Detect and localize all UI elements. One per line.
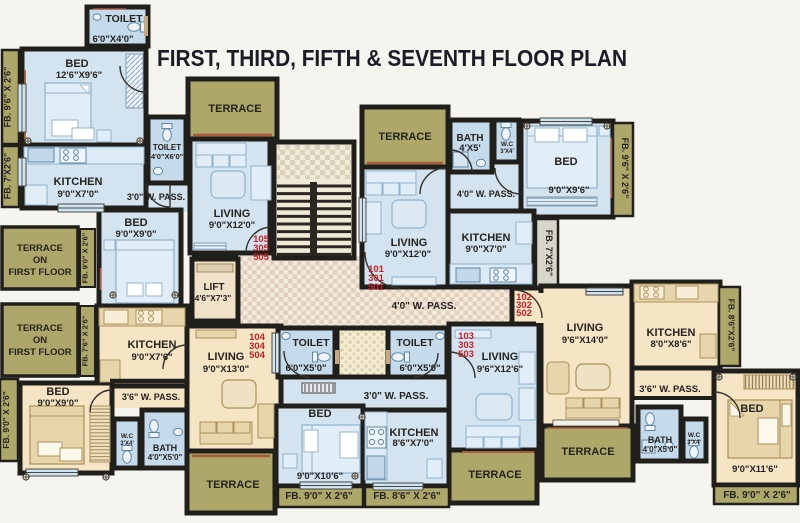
svg-text:4'0" W. PASS.: 4'0" W. PASS.: [457, 189, 515, 199]
svg-text:8'6"X7'0": 8'6"X7'0": [393, 438, 434, 449]
svg-text:LIVING: LIVING: [214, 208, 251, 220]
svg-text:4'0"X5'0": 4'0"X5'0": [643, 445, 678, 454]
svg-text:3'X4': 3'X4': [500, 149, 514, 155]
svg-text:9'0"X9'0": 9'0"X9'0": [116, 229, 157, 240]
svg-text:3'X4': 3'X4': [687, 440, 701, 446]
svg-text:LIVING: LIVING: [391, 237, 428, 249]
svg-text:TERRACE: TERRACE: [378, 131, 431, 143]
svg-text:501: 501: [368, 282, 385, 293]
svg-text:TERRACE: TERRACE: [468, 469, 521, 481]
svg-text:FB. 7'X2'6": FB. 7'X2'6": [544, 230, 554, 277]
svg-text:9'0"X9'6": 9'0"X9'6": [549, 185, 590, 196]
svg-text:LIVING: LIVING: [482, 351, 519, 363]
svg-text:9'6"X14'0": 9'6"X14'0": [562, 335, 608, 346]
svg-text:LIFT: LIFT: [203, 282, 224, 293]
svg-text:505: 505: [253, 252, 270, 263]
svg-text:9'0"X12'0": 9'0"X12'0": [385, 249, 431, 260]
svg-text:3'6" W. PASS.: 3'6" W. PASS.: [639, 384, 701, 395]
svg-text:3'0" W. PASS.: 3'0" W. PASS.: [364, 391, 429, 402]
svg-text:BED: BED: [740, 403, 763, 415]
svg-text:4'0"X5'0": 4'0"X5'0": [148, 453, 183, 462]
svg-text:9'0"X11'6": 9'0"X11'6": [732, 464, 778, 475]
svg-text:ON: ON: [33, 255, 47, 266]
svg-text:TOILET: TOILET: [396, 337, 434, 349]
svg-text:FIRST, THIRD, FIFTH & SEVENTH: FIRST, THIRD, FIFTH & SEVENTH FLOOR PLAN: [157, 45, 627, 71]
svg-text:6'0"X5'0": 6'0"X5'0": [400, 363, 441, 374]
svg-text:3'6" W. PASS.: 3'6" W. PASS.: [122, 392, 180, 402]
svg-text:KITCHEN: KITCHEN: [462, 232, 511, 244]
svg-text:BED: BED: [308, 408, 331, 420]
svg-text:9'0"X9'0": 9'0"X9'0": [38, 398, 79, 409]
svg-text:ON: ON: [33, 335, 47, 346]
svg-text:TERRACE: TERRACE: [17, 243, 63, 254]
svg-text:BED: BED: [65, 58, 88, 70]
svg-text:FB. 8'6"X2'6": FB. 8'6"X2'6": [727, 299, 737, 352]
svg-text:FB. 8'6" X 2'6": FB. 8'6" X 2'6": [373, 491, 441, 502]
svg-text:9'0"X7'6": 9'0"X7'6": [132, 352, 173, 363]
svg-text:12'6"X9'6": 12'6"X9'6": [56, 70, 102, 81]
svg-text:TOILET: TOILET: [105, 13, 143, 25]
svg-text:TOILET: TOILET: [292, 337, 330, 349]
svg-text:FB. 9'0" X 2'6": FB. 9'0" X 2'6": [1, 391, 11, 448]
svg-text:9'0"X12'0": 9'0"X12'0": [209, 220, 255, 231]
svg-text:9'0"X7'0": 9'0"X7'0": [58, 189, 99, 200]
svg-text:W.C: W.C: [121, 433, 134, 440]
svg-text:BED: BED: [554, 156, 577, 168]
svg-text:TERRACE: TERRACE: [17, 323, 63, 334]
svg-text:502: 502: [516, 308, 532, 319]
svg-text:8'0"X8'6": 8'0"X8'6": [651, 339, 692, 350]
svg-text:3'0" W. PASS.: 3'0" W. PASS.: [127, 192, 185, 202]
svg-text:LIVING: LIVING: [567, 322, 604, 334]
svg-text:FB. 7'X2'6": FB. 7'X2'6": [3, 153, 13, 200]
svg-text:BED: BED: [46, 386, 69, 398]
svg-text:9'0"X7'0": 9'0"X7'0": [466, 244, 507, 255]
svg-text:9'6"X12'6": 9'6"X12'6": [477, 364, 523, 375]
svg-text:TERRACE: TERRACE: [561, 446, 614, 458]
svg-text:KITCHEN: KITCHEN: [647, 327, 696, 339]
svg-text:LIVING: LIVING: [208, 351, 245, 363]
svg-text:FB. 7'6" X 2'6": FB. 7'6" X 2'6": [81, 315, 90, 366]
svg-text:KITCHEN: KITCHEN: [54, 176, 103, 188]
svg-text:W.C: W.C: [501, 141, 514, 148]
svg-text:TOILET: TOILET: [153, 143, 181, 152]
svg-text:BED: BED: [124, 217, 147, 229]
svg-text:BATH: BATH: [648, 435, 672, 445]
svg-text:6'0"X5'0": 6'0"X5'0": [286, 363, 327, 374]
svg-text:4'6"X7'3": 4'6"X7'3": [195, 293, 232, 303]
svg-text:KITCHEN: KITCHEN: [128, 339, 177, 351]
svg-text:FB. 9'0" X 2'6": FB. 9'0" X 2'6": [81, 232, 90, 283]
svg-text:3'X4': 3'X4': [120, 441, 134, 447]
svg-text:FB. 9'0" X 2'6": FB. 9'0" X 2'6": [723, 490, 791, 501]
svg-text:TERRACE: TERRACE: [208, 103, 261, 115]
svg-text:504: 504: [249, 350, 266, 361]
svg-text:503: 503: [458, 349, 474, 360]
svg-text:4'0" W. PASS.: 4'0" W. PASS.: [392, 301, 457, 312]
svg-text:FB. 9'6" X 2'6": FB. 9'6" X 2'6": [3, 67, 13, 128]
svg-text:FIRST FLOOR: FIRST FLOOR: [8, 347, 71, 358]
svg-text:W.C: W.C: [688, 432, 701, 439]
svg-text:FIRST FLOOR: FIRST FLOOR: [8, 267, 71, 278]
svg-text:4'0"X6'0": 4'0"X6'0": [151, 152, 184, 161]
svg-text:6'0"X4'0": 6'0"X4'0": [93, 34, 134, 45]
svg-text:4'X5': 4'X5': [459, 143, 480, 154]
svg-text:FB. 9'6" X 2'6": FB. 9'6" X 2'6": [620, 138, 630, 199]
svg-text:FB. 9'0" X 2'6": FB. 9'0" X 2'6": [285, 491, 353, 502]
svg-text:TERRACE: TERRACE: [206, 479, 259, 491]
svg-text:9'0"X10'6": 9'0"X10'6": [297, 471, 343, 482]
svg-text:9'0"X13'0": 9'0"X13'0": [203, 364, 249, 375]
svg-text:BATH: BATH: [153, 443, 177, 453]
